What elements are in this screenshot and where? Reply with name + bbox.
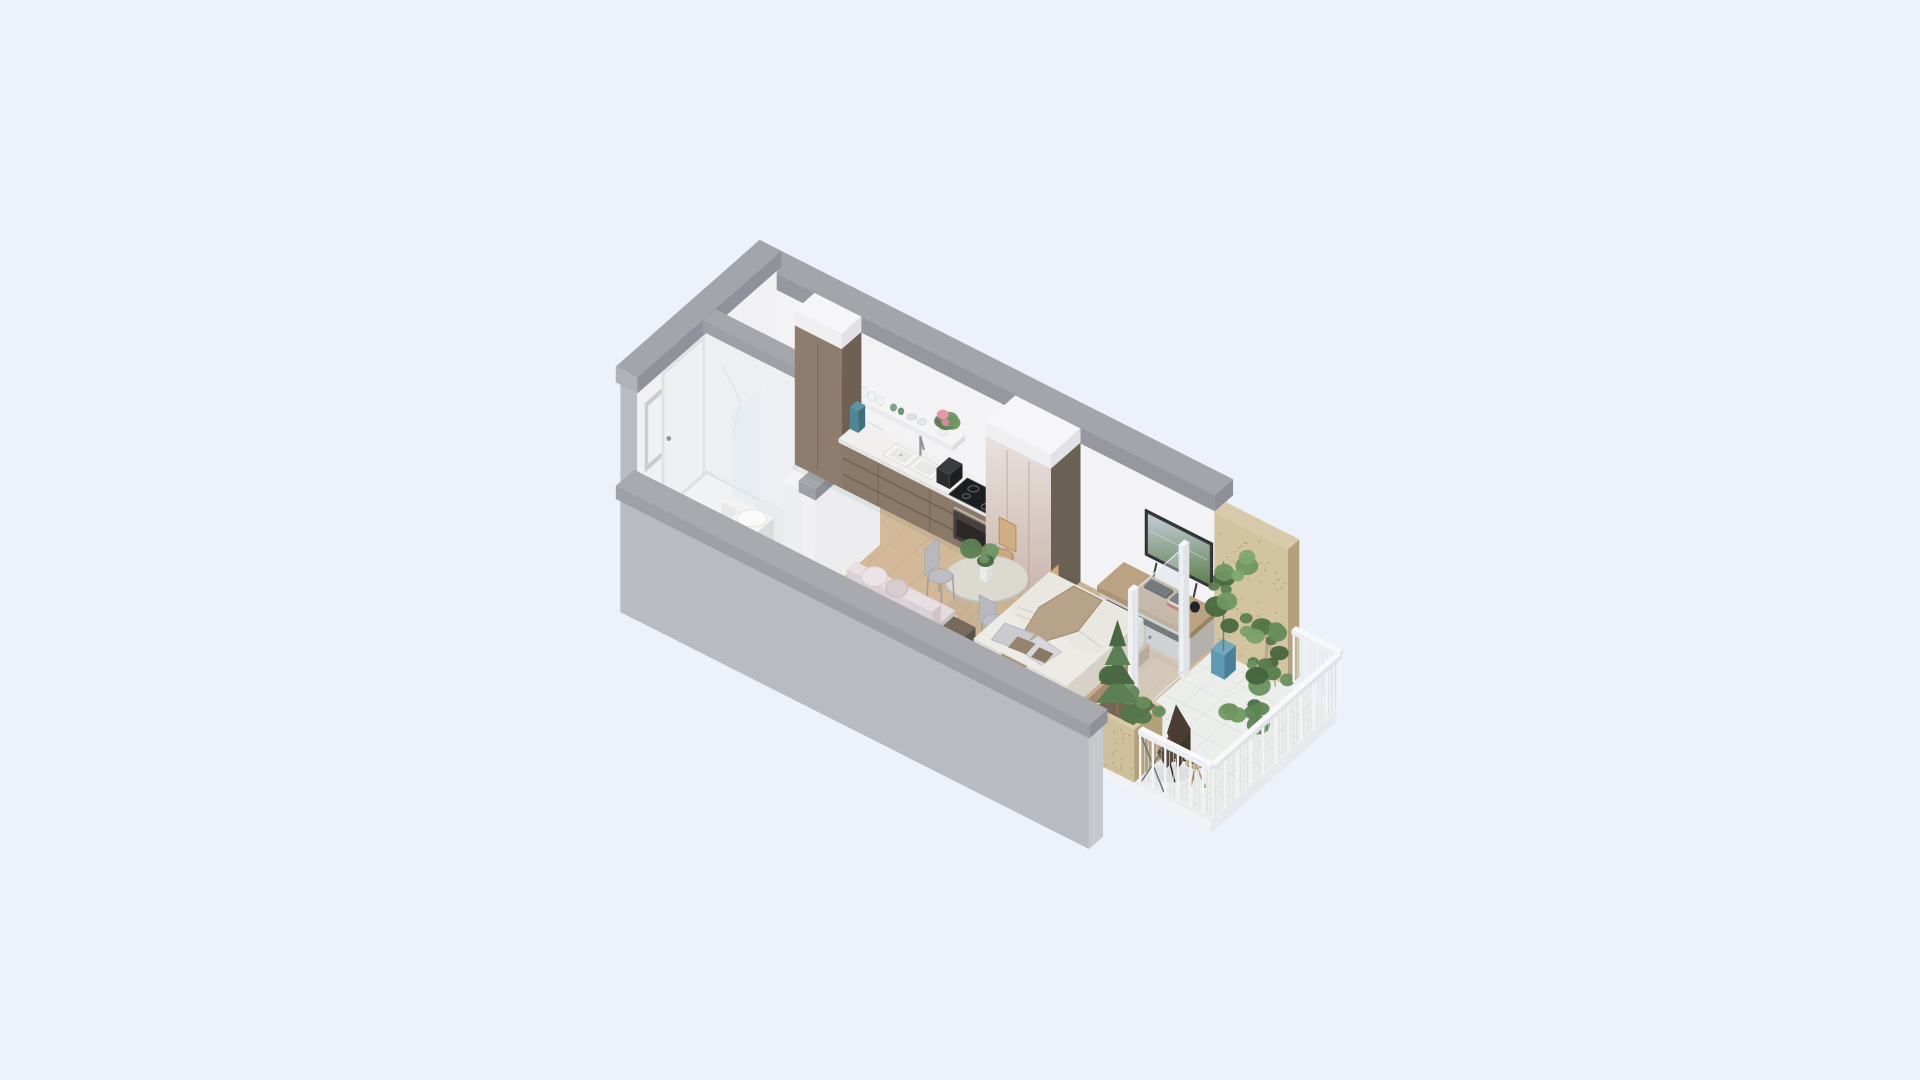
shelf-bowl-2 xyxy=(918,419,927,425)
sink-drain xyxy=(899,454,902,456)
kettle-teal xyxy=(850,401,865,433)
shelf-glass-2 xyxy=(868,392,876,402)
floor-plan-stage xyxy=(0,0,1920,1080)
shelf-flower-pink-2 xyxy=(942,419,950,426)
vase-black xyxy=(1190,601,1200,612)
shelf-glass-3 xyxy=(877,396,884,405)
apartment-scene xyxy=(616,240,1343,849)
entry-door-handle xyxy=(666,436,671,441)
sofa-pillow-2 xyxy=(886,579,908,597)
shelf-cup-green-1 xyxy=(890,404,897,412)
shelf-cup-green-2 xyxy=(898,408,904,416)
isometric-apartment-render xyxy=(0,0,1920,1080)
shelf-bowl-1 xyxy=(907,414,917,420)
sofa-pillow-1 xyxy=(861,567,887,587)
shelf-flower-pink-1 xyxy=(937,410,949,420)
